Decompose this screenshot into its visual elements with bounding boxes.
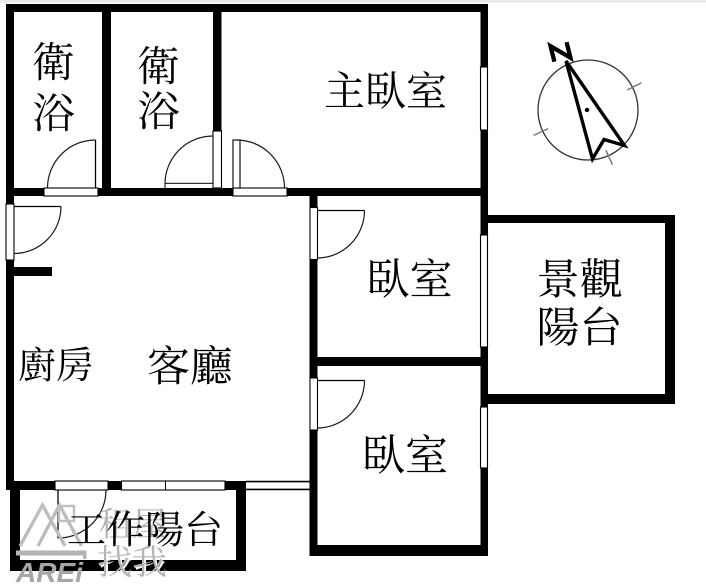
svg-text:AREi: AREi: [15, 557, 84, 588]
